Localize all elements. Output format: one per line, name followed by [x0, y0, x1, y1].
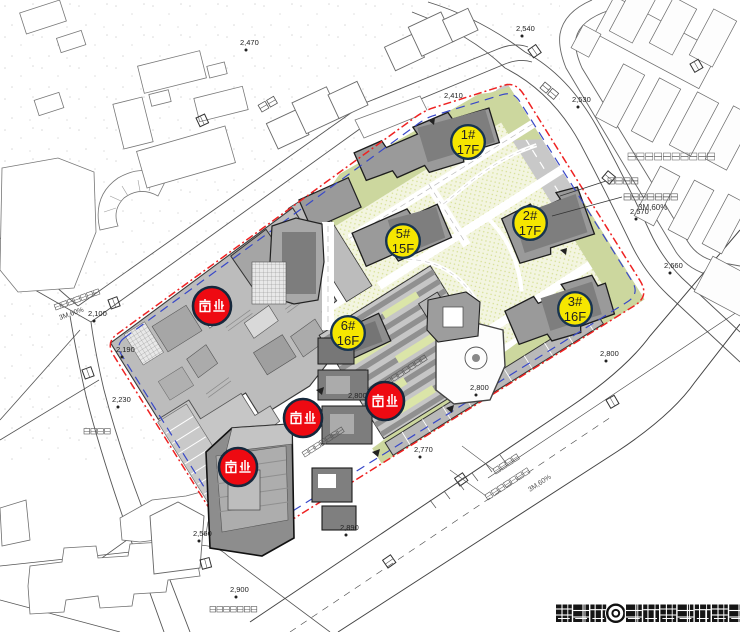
- svg-text:2,530: 2,530: [572, 95, 591, 104]
- svg-text:2,770: 2,770: [414, 445, 433, 454]
- svg-text:2,230: 2,230: [112, 395, 131, 404]
- svg-text:2,800: 2,800: [348, 391, 367, 400]
- svg-text:2#: 2#: [523, 208, 538, 223]
- svg-text:16F: 16F: [564, 309, 586, 324]
- svg-text:2,100: 2,100: [88, 309, 107, 318]
- svg-text:2,890: 2,890: [340, 523, 359, 532]
- svg-text:2,410: 2,410: [444, 91, 463, 100]
- svg-text:17F: 17F: [457, 142, 479, 157]
- svg-text:17F: 17F: [519, 223, 541, 238]
- svg-text:16F: 16F: [337, 333, 359, 348]
- svg-text:2,190: 2,190: [116, 345, 135, 354]
- svg-text:3#: 3#: [568, 294, 583, 309]
- svg-text:2,540: 2,540: [516, 24, 535, 33]
- svg-text:1#: 1#: [461, 127, 476, 142]
- svg-text:2,900: 2,900: [230, 585, 249, 594]
- svg-text:2,560: 2,560: [193, 529, 212, 538]
- svg-text:2,660: 2,660: [664, 261, 683, 270]
- svg-text:2,800: 2,800: [470, 383, 489, 392]
- svg-text:5#: 5#: [396, 226, 411, 241]
- svg-text:6#: 6#: [341, 318, 356, 333]
- svg-text:2,570: 2,570: [630, 207, 649, 216]
- svg-text:15F: 15F: [392, 241, 414, 256]
- svg-text:2,470: 2,470: [240, 38, 259, 47]
- svg-text:2,800: 2,800: [600, 349, 619, 358]
